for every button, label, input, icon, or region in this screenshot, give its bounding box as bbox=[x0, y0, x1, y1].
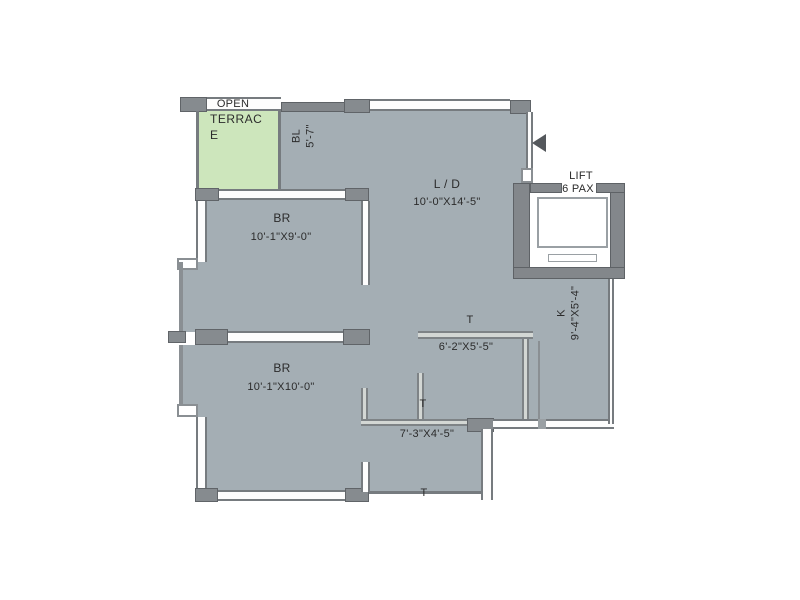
wall-pillar bbox=[344, 99, 370, 113]
toilet-mid-bottom-wall bbox=[361, 419, 470, 426]
toilet-top-name: T bbox=[466, 314, 473, 326]
toilet-mid-name: T bbox=[419, 398, 426, 410]
wall-stub-window bbox=[361, 462, 370, 492]
balcony-name: BL bbox=[290, 124, 304, 147]
wall-pillar bbox=[195, 488, 218, 502]
lift-shaft-top-right bbox=[596, 183, 625, 193]
bedroom-bottom-top-wall bbox=[228, 331, 343, 343]
lift-name: LIFT bbox=[569, 170, 593, 182]
window-sill-2 bbox=[177, 404, 198, 417]
kitchen-bottom-window bbox=[493, 419, 614, 429]
toilet-bottom-name: T bbox=[420, 487, 427, 499]
toilet-top-dims: 6'-2"X5'-5" bbox=[439, 341, 493, 353]
terrace-left-wall bbox=[196, 111, 199, 190]
wall-pillar bbox=[195, 188, 219, 201]
room-fill-edge-2 bbox=[183, 345, 196, 407]
lift-capacity: 6 PAX bbox=[562, 183, 594, 195]
wall-pillar bbox=[343, 329, 370, 345]
bedroom-top-dims: 10'-1"X9'-0" bbox=[251, 231, 312, 243]
entry-arrow-icon bbox=[532, 134, 546, 152]
living-top-window bbox=[370, 99, 510, 111]
bedroom-top-right-wall bbox=[361, 201, 370, 285]
bedroom-bottom-name: BR bbox=[273, 361, 290, 375]
bedroom-bottom-dims: 10'-1"X10'-0" bbox=[247, 381, 314, 393]
lift-car-icon bbox=[537, 197, 608, 248]
kitchen-name: K bbox=[555, 286, 569, 340]
lift-shaft-left-wall bbox=[513, 183, 530, 279]
balcony-dims: 5'-7" bbox=[304, 124, 318, 147]
lift-shaft-right-wall bbox=[610, 183, 625, 279]
kitchen-window-mullion bbox=[538, 419, 546, 429]
room-fill-edge-1 bbox=[183, 262, 196, 332]
lift-shaft-bottom-wall bbox=[513, 267, 625, 279]
lift-door-icon bbox=[548, 254, 597, 262]
living-dining-name: L / D bbox=[434, 177, 460, 191]
floor-plan-canvas: OPEN TERRACE BL 5'-7" L / D 10'-0"X14'-5… bbox=[0, 0, 800, 600]
toilet-top-wall bbox=[418, 331, 533, 339]
toilet-mid-dims: 7'-3"X4'-5" bbox=[400, 428, 454, 440]
balcony-top-wall bbox=[281, 102, 345, 112]
wall-stub bbox=[168, 331, 186, 343]
left-window-2 bbox=[196, 417, 207, 489]
kitchen-counter-line bbox=[538, 341, 540, 424]
bottom-window-wall bbox=[218, 490, 345, 501]
open-terrace-label-open: OPEN bbox=[217, 98, 249, 110]
entry-jamb bbox=[521, 168, 533, 183]
toilet-top-right-wall bbox=[522, 339, 529, 424]
kitchen-dims: 9'-4"X5'-4" bbox=[569, 286, 583, 340]
toilet-mid-partition bbox=[417, 373, 424, 419]
left-wall-1 bbox=[179, 262, 183, 332]
right-wall-lower bbox=[481, 429, 493, 500]
bedroom-top-window-wall bbox=[219, 189, 345, 200]
left-wall-2 bbox=[179, 345, 183, 407]
wall-pillar bbox=[180, 97, 207, 112]
balcony-label: BL 5'-7" bbox=[290, 124, 318, 147]
lift-shaft-top-left bbox=[530, 183, 562, 193]
left-window-1 bbox=[196, 201, 207, 262]
bottom-wall-line bbox=[369, 491, 487, 494]
living-dining-dims: 10'-0"X14'-5" bbox=[413, 196, 480, 208]
kitchen-right-wall bbox=[608, 277, 614, 424]
bedroom-top-name: BR bbox=[273, 211, 290, 225]
kitchen-label: K 9'-4"X5'-4" bbox=[555, 286, 583, 340]
terrace-balcony-divider bbox=[278, 111, 281, 190]
wall-pillar bbox=[345, 188, 369, 201]
wall-pillar bbox=[195, 329, 228, 345]
open-terrace-label-terrace: TERRACE bbox=[210, 111, 268, 143]
